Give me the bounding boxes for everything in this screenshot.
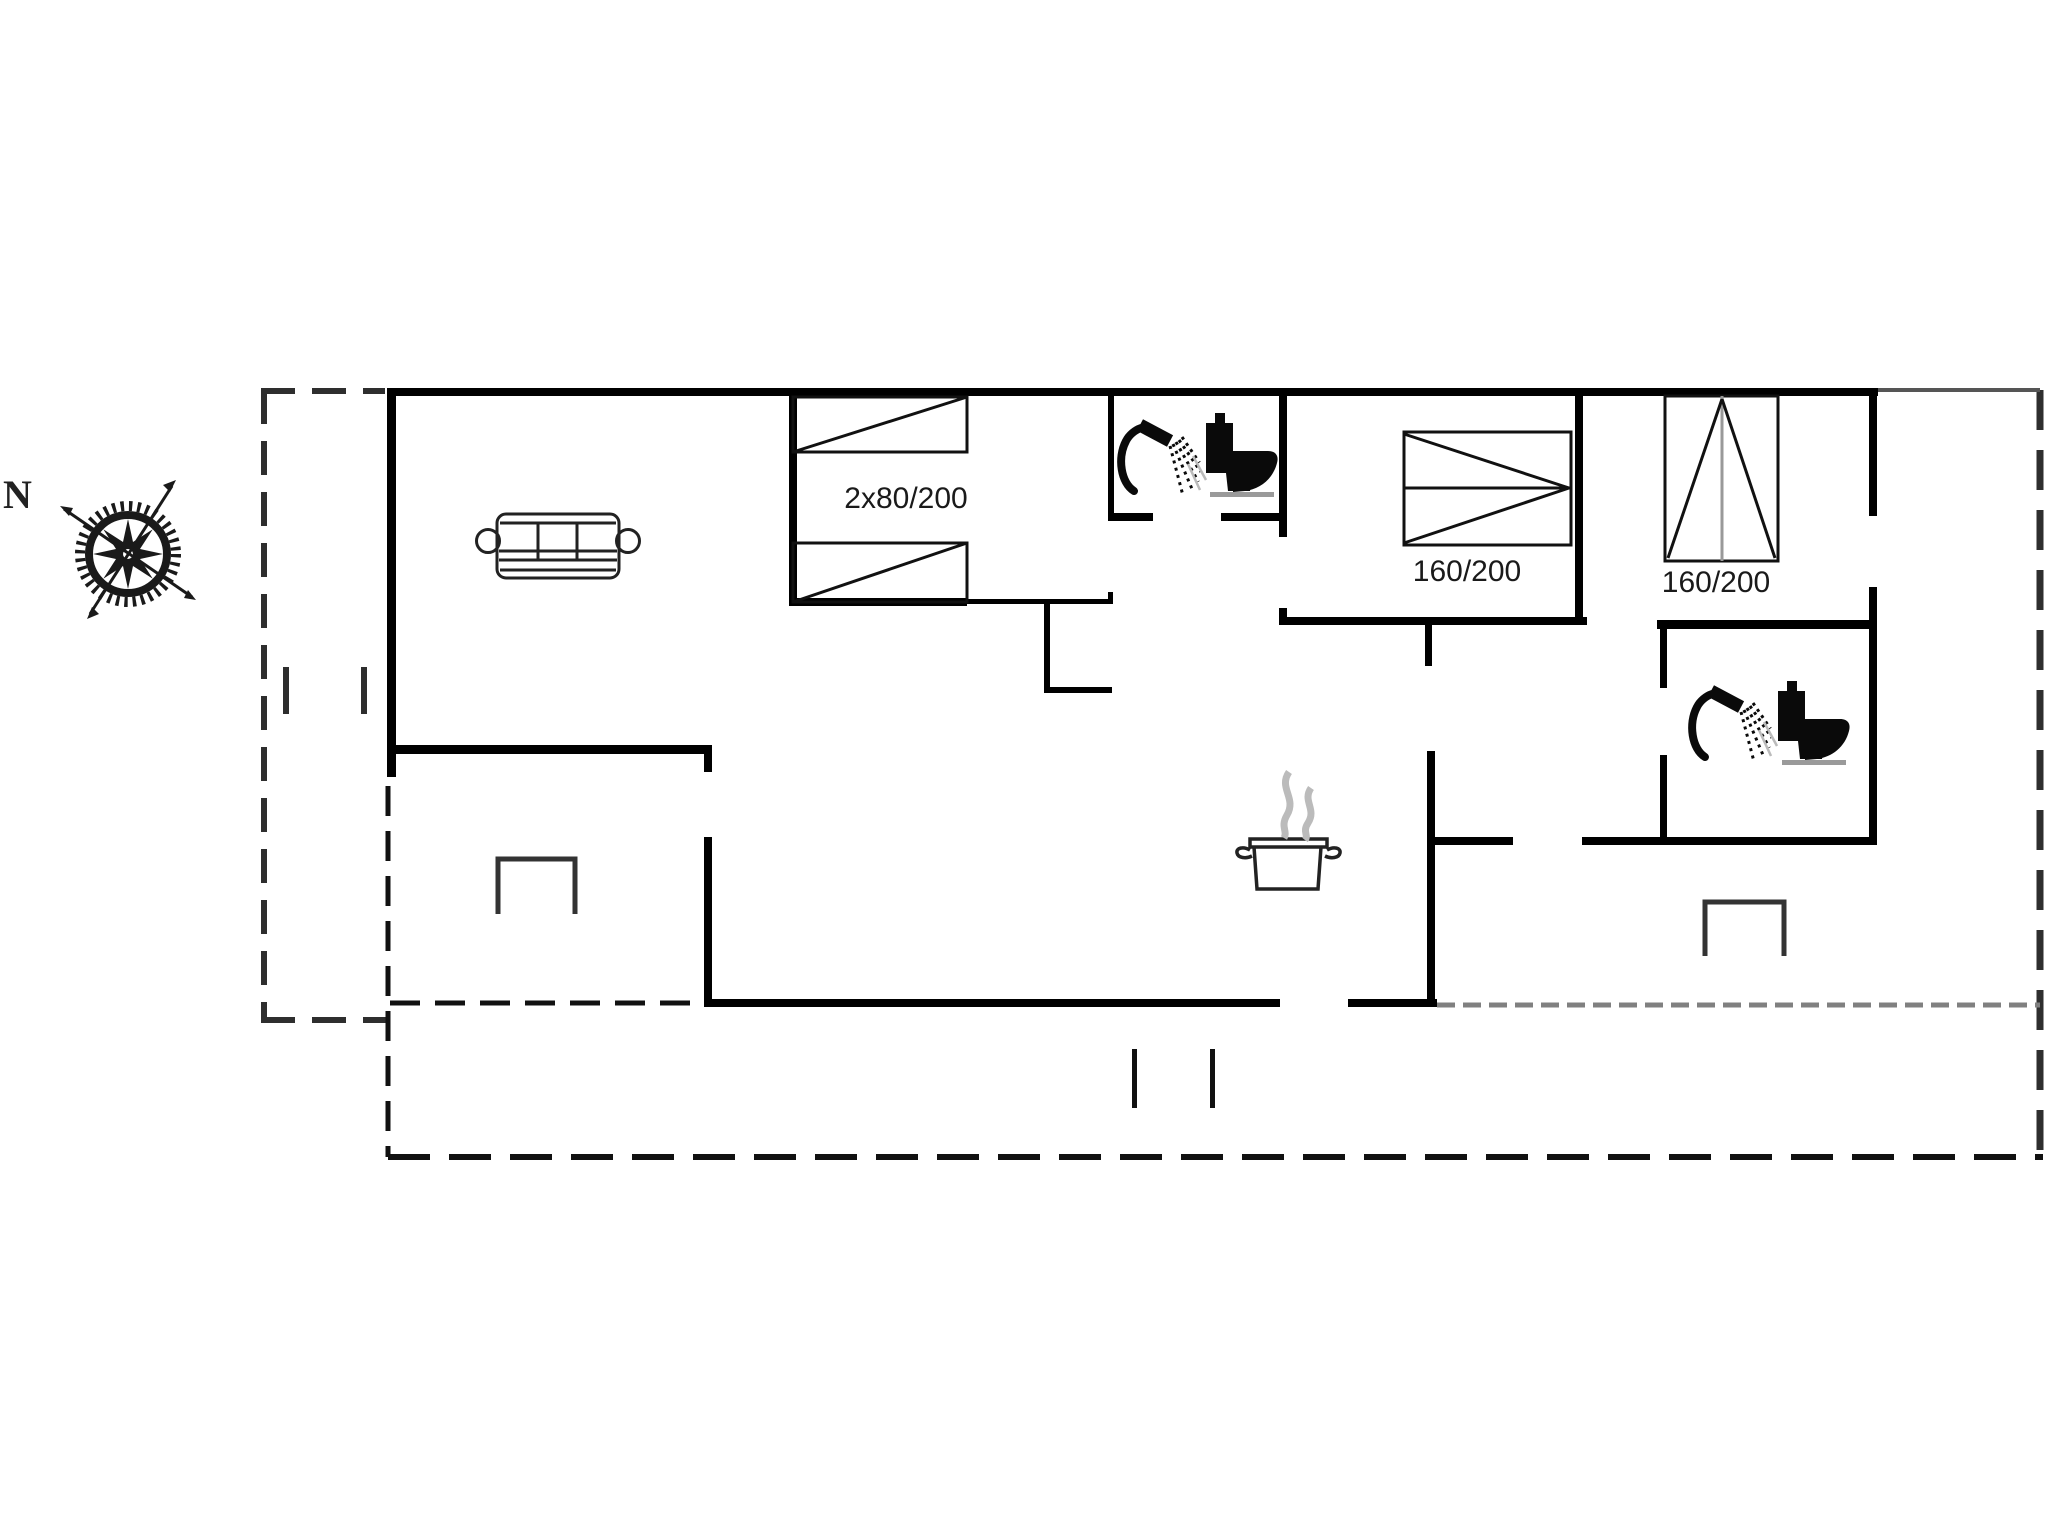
svg-text:160/200: 160/200 xyxy=(1413,555,1521,588)
svg-text:2x80/200: 2x80/200 xyxy=(844,482,967,515)
svg-text:160/200: 160/200 xyxy=(1662,566,1770,599)
svg-text:N: N xyxy=(3,472,32,517)
